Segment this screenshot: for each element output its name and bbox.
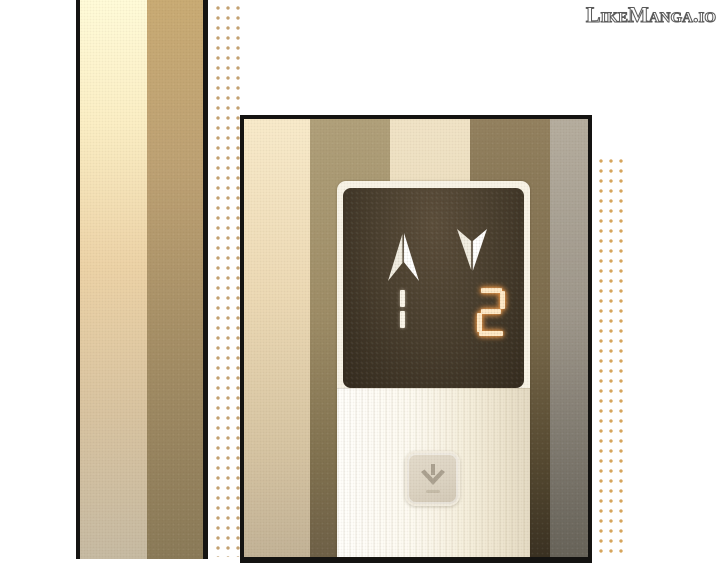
floor-number-right	[477, 288, 505, 336]
wall-stripe-light	[80, 0, 147, 559]
call-elevator-down-button[interactable]	[405, 451, 460, 506]
wall-stripe-dark	[147, 0, 203, 559]
panel-stripe-gray-right	[550, 119, 588, 557]
elevator-wall-panel	[240, 115, 592, 563]
floor-number-left	[400, 290, 406, 328]
watermark-logo: LikeManga.io	[586, 2, 716, 28]
digit-segment	[400, 290, 405, 307]
elevator-control-fixture	[337, 181, 530, 557]
call-button-plate	[337, 388, 530, 557]
background-wall-panel	[76, 0, 208, 559]
down-arrow-icon	[455, 228, 489, 272]
floor-indicator-display	[343, 188, 524, 388]
manga-page: LikeManga.io	[0, 0, 720, 563]
halftone-dots-middle-strip	[210, 0, 240, 557]
up-arrow-icon	[385, 232, 421, 282]
button-engraving-marks	[426, 490, 440, 493]
down-arrow-icon	[418, 464, 448, 488]
panel-stripe-cream-left	[244, 119, 310, 557]
halftone-dots-right-strip	[593, 153, 629, 558]
digit-segment	[400, 311, 405, 328]
